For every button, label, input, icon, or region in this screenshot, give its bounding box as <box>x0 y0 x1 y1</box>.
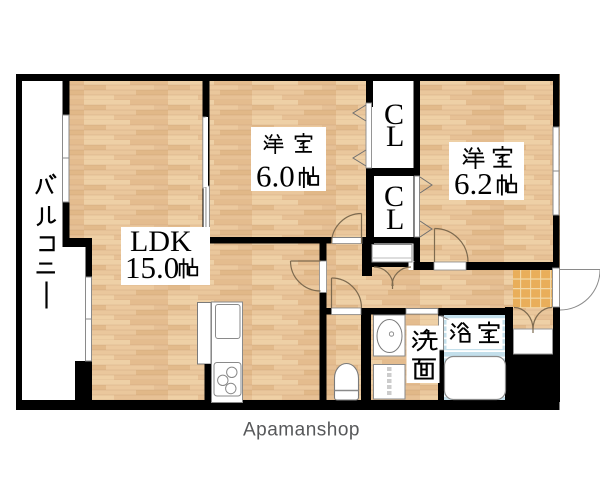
svg-text:Apamanshop: Apamanshop <box>243 420 360 441</box>
svg-text:L: L <box>386 120 404 153</box>
svg-text:6.0: 6.0 <box>256 159 295 194</box>
svg-text:L: L <box>386 203 404 236</box>
svg-text:15.0: 15.0 <box>125 250 179 285</box>
svg-text:6.2: 6.2 <box>454 166 493 201</box>
